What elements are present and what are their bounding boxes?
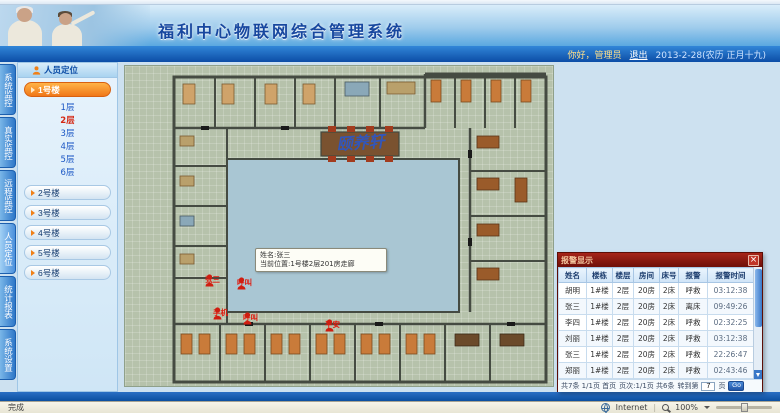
alarm-row-3: 李四1#楼2层20房2床呼救02:32:25: [559, 315, 754, 331]
scrollbar-thumb[interactable]: [755, 269, 762, 327]
alarm-cell: 李四: [559, 315, 587, 331]
header-photo: [0, 5, 150, 46]
alarm-cell: 1#楼: [587, 363, 613, 379]
building-label: 1号楼: [38, 84, 60, 96]
nav-tab-1[interactable]: 系统监控: [0, 64, 16, 115]
alarm-cell: 2床: [660, 363, 679, 379]
person-marker-4[interactable]: 呼叫: [243, 312, 258, 323]
pagination-unit: 页: [718, 381, 725, 391]
sidebar-title: 人员定位: [44, 64, 78, 76]
pagination-pageinfo: 页次:1/1页 共6条: [619, 381, 674, 391]
alarm-cell: 1#楼: [587, 283, 613, 299]
alarm-cell: 呼救: [679, 363, 708, 379]
building-button-4[interactable]: 4号楼: [24, 225, 111, 240]
floor-list: 1层2层3层4层5层6层: [24, 102, 111, 180]
alarm-row-1: 胡明1#楼2层20房2床呼救03:12:38: [559, 283, 754, 299]
courtyard: [227, 159, 459, 312]
floor-item-5[interactable]: 5层: [24, 154, 111, 167]
alarm-cell: 2层: [613, 299, 634, 315]
internet-zone-icon: [601, 403, 610, 412]
building-list: 1号楼1层2层3层4层5层6层2号楼3号楼4号楼5号楼6号楼: [18, 78, 117, 280]
app-window: 福利中心物联网综合管理系统 你好，管理员 退出 2013-2-28(农历 正月十…: [0, 0, 780, 413]
logout-link[interactable]: 退出: [630, 48, 648, 61]
marker-tooltip: 姓名:张三 当前位置:1号楼2层201房走廊: [255, 248, 387, 272]
user-greeting: 你好，管理员: [568, 48, 622, 61]
person-pin-icon: [243, 312, 252, 325]
alarm-cell: 刘丽: [559, 331, 587, 347]
sidebar-panel: 人员定位 1号楼1层2层3层4层5层6层2号楼3号楼4号楼5号楼6号楼: [17, 62, 118, 392]
statusbar-divider: |: [653, 403, 656, 412]
alarm-cell: 2床: [660, 299, 679, 315]
alarm-cell: 1#楼: [587, 331, 613, 347]
alarm-cell: 2床: [660, 331, 679, 347]
nav-tab-4[interactable]: 人员定位: [0, 223, 16, 274]
chevron-right-icon: [31, 87, 35, 93]
alarm-row-2: 张三1#楼2层20房2床离床09:49:26: [559, 299, 754, 315]
nav-tab-6[interactable]: 系统设置: [0, 329, 16, 380]
page-number-input[interactable]: [701, 382, 715, 391]
building-button-5[interactable]: 5号楼: [24, 245, 111, 260]
alarm-table: 姓名楼栋楼层房间床号报警报警时间 胡明1#楼2层20房2床呼救03:12:38张…: [558, 267, 754, 379]
alarm-cell: 1#楼: [587, 347, 613, 363]
person-silhouette: [8, 20, 42, 46]
person-marker-2[interactable]: 呼叫: [237, 277, 252, 288]
alarm-popup: 报警显示 × 姓名楼栋楼层房间床号报警报警时间 胡明1#楼2层20房2床呼救03…: [557, 252, 763, 392]
zone-label: Internet: [616, 403, 648, 412]
popup-scrollbar[interactable]: [753, 267, 762, 379]
building-label: 6号楼: [38, 267, 60, 279]
tooltip-line1: 姓名:张三: [260, 251, 382, 260]
alarm-cell: 03:12:38: [708, 283, 754, 299]
alarm-cell: 2床: [660, 315, 679, 331]
person-marker-5[interactable]: 平安: [325, 319, 340, 330]
alarm-cell: 郑丽: [559, 363, 587, 379]
nav-tab-2[interactable]: 真实监控: [0, 117, 16, 168]
alarm-col-header-5: 床号: [660, 268, 679, 283]
alarm-cell: 呼救: [679, 331, 708, 347]
alarm-table-wrap: 姓名楼栋楼层房间床号报警报警时间 胡明1#楼2层20房2床呼救03:12:38张…: [558, 267, 762, 379]
alarm-cell: 09:49:26: [708, 299, 754, 315]
alarm-cell: 2层: [613, 283, 634, 299]
person-pin-icon: [237, 277, 246, 290]
app-title: 福利中心物联网综合管理系统: [158, 18, 405, 42]
alarm-popup-titlebar[interactable]: 报警显示 ×: [558, 253, 762, 267]
alarm-col-header-1: 姓名: [559, 268, 587, 283]
chevron-right-icon: [31, 250, 35, 256]
floorplan-drawing: 颐养轩: [125, 66, 555, 388]
alarm-cell: 2床: [660, 283, 679, 299]
alarm-cell: 22:26:47: [708, 347, 754, 363]
alarm-row-4: 刘丽1#楼2层20房2床呼救03:12:38: [559, 331, 754, 347]
zoom-slider-thumb[interactable]: [741, 403, 748, 412]
alarm-col-header-3: 楼层: [613, 268, 634, 283]
sidebar-title-bar: 人员定位: [18, 63, 117, 78]
alarm-cell: 20房: [634, 299, 660, 315]
close-icon[interactable]: ×: [748, 255, 759, 266]
zoom-slider[interactable]: [716, 406, 772, 409]
chevron-down-icon[interactable]: [704, 406, 710, 409]
person-icon: [32, 66, 41, 75]
person-silhouette: [71, 10, 96, 26]
magnifier-icon: [662, 404, 669, 411]
person-silhouette: [17, 8, 32, 22]
alarm-cell: 张三: [559, 347, 587, 363]
alarm-cell: 呼救: [679, 315, 708, 331]
alarm-popup-title: 报警显示: [561, 255, 593, 266]
building-name-label: 颐养轩: [336, 131, 388, 154]
zoom-level: 100%: [675, 403, 698, 412]
person-marker-3[interactable]: 手机: [213, 307, 228, 318]
alarm-cell: 02:43:46: [708, 363, 754, 379]
alarm-cell: 20房: [634, 315, 660, 331]
alarm-cell: 张三: [559, 299, 587, 315]
chevron-right-icon: [31, 190, 35, 196]
app-header: 福利中心物联网综合管理系统: [0, 5, 780, 46]
person-marker-1[interactable]: 张三: [205, 274, 220, 285]
nav-tab-3[interactable]: 远程监控: [0, 170, 16, 221]
building-button-3[interactable]: 3号楼: [24, 205, 111, 220]
status-text: 完成: [8, 402, 24, 413]
go-button[interactable]: Go: [728, 381, 744, 391]
footer-strip: [0, 392, 780, 401]
pagination-summary: 共7条 1/1页 首页: [561, 381, 616, 391]
alarm-cell: 20房: [634, 283, 660, 299]
person-pin-icon: [205, 274, 214, 287]
alarm-table-header: 姓名楼栋楼层房间床号报警报警时间: [559, 268, 754, 283]
alarm-cell: 02:32:25: [708, 315, 754, 331]
building-button-6[interactable]: 6号楼: [24, 265, 111, 280]
main-area: 系统监控真实监控远程监控人员定位统计报表系统设置 人员定位 1号楼1层2层3层4…: [0, 62, 780, 392]
chevron-right-icon: [31, 210, 35, 216]
building-label: 2号楼: [38, 187, 60, 199]
header-subbar: 你好，管理员 退出 2013-2-28(农历 正月十九): [0, 46, 780, 62]
chevron-right-icon: [31, 270, 35, 276]
building-label: 3号楼: [38, 207, 60, 219]
browser-statusbar: 完成 Internet | 100%: [0, 401, 780, 413]
alarm-cell: 离床: [679, 299, 708, 315]
alarm-cell: 03:12:38: [708, 331, 754, 347]
left-nav: 系统监控真实监控远程监控人员定位统计报表系统设置: [0, 64, 17, 382]
nav-tab-5[interactable]: 统计报表: [0, 276, 16, 327]
alarm-cell: 20房: [634, 347, 660, 363]
floor-item-6[interactable]: 6层: [24, 167, 111, 180]
alarm-row-6: 郑丽1#楼2层20房2床呼救02:43:46: [559, 363, 754, 379]
building-button-2[interactable]: 2号楼: [24, 185, 111, 200]
building-label: 5号楼: [38, 247, 60, 259]
person-pin-icon: [213, 307, 222, 320]
alarm-cell: 呼救: [679, 283, 708, 299]
alarm-cell: 20房: [634, 331, 660, 347]
alarm-cell: 1#楼: [587, 299, 613, 315]
header-date: 2013-2-28(农历 正月十九): [656, 48, 766, 61]
building-label: 4号楼: [38, 227, 60, 239]
floorplan[interactable]: 颐养轩 张三呼叫手机呼叫平安 姓名:张三 当前位置:1号楼2层201房走廊: [124, 65, 554, 387]
alarm-cell: 胡明: [559, 283, 587, 299]
alarm-col-header-2: 楼栋: [587, 268, 613, 283]
tooltip-line2: 当前位置:1号楼2层201房走廊: [260, 260, 382, 269]
chevron-right-icon: [31, 230, 35, 236]
alarm-col-header-4: 房间: [634, 268, 660, 283]
alarm-cell: 2床: [660, 347, 679, 363]
alarm-cell: 1#楼: [587, 315, 613, 331]
pagination-goto-label: 转到第: [677, 381, 698, 391]
alarm-row-5: 张三1#楼2层20房2床呼救22:26:47: [559, 347, 754, 363]
alarm-cell: 20房: [634, 363, 660, 379]
alarm-cell: 2层: [613, 315, 634, 331]
scroll-down-icon[interactable]: [754, 370, 762, 379]
alarm-cell: 呼救: [679, 347, 708, 363]
alarm-cell: 2层: [613, 331, 634, 347]
building-button-1[interactable]: 1号楼: [24, 82, 111, 97]
alarm-cell: 2层: [613, 363, 634, 379]
floor-item-4[interactable]: 4层: [24, 141, 111, 154]
person-pin-icon: [325, 319, 334, 332]
alarm-col-header-7: 报警时间: [708, 268, 754, 283]
floor-item-3[interactable]: 3层: [24, 128, 111, 141]
alarm-col-header-6: 报警: [679, 268, 708, 283]
floor-item-2[interactable]: 2层: [24, 115, 111, 128]
alarm-table-body: 胡明1#楼2层20房2床呼救03:12:38张三1#楼2层20房2床离床09:4…: [559, 283, 754, 379]
alarm-cell: 2层: [613, 347, 634, 363]
person-silhouette: [52, 24, 82, 46]
floor-item-1[interactable]: 1层: [24, 102, 111, 115]
alarm-pagination: 共7条 1/1页 首页 页次:1/1页 共6条 转到第 页 Go: [558, 379, 762, 392]
